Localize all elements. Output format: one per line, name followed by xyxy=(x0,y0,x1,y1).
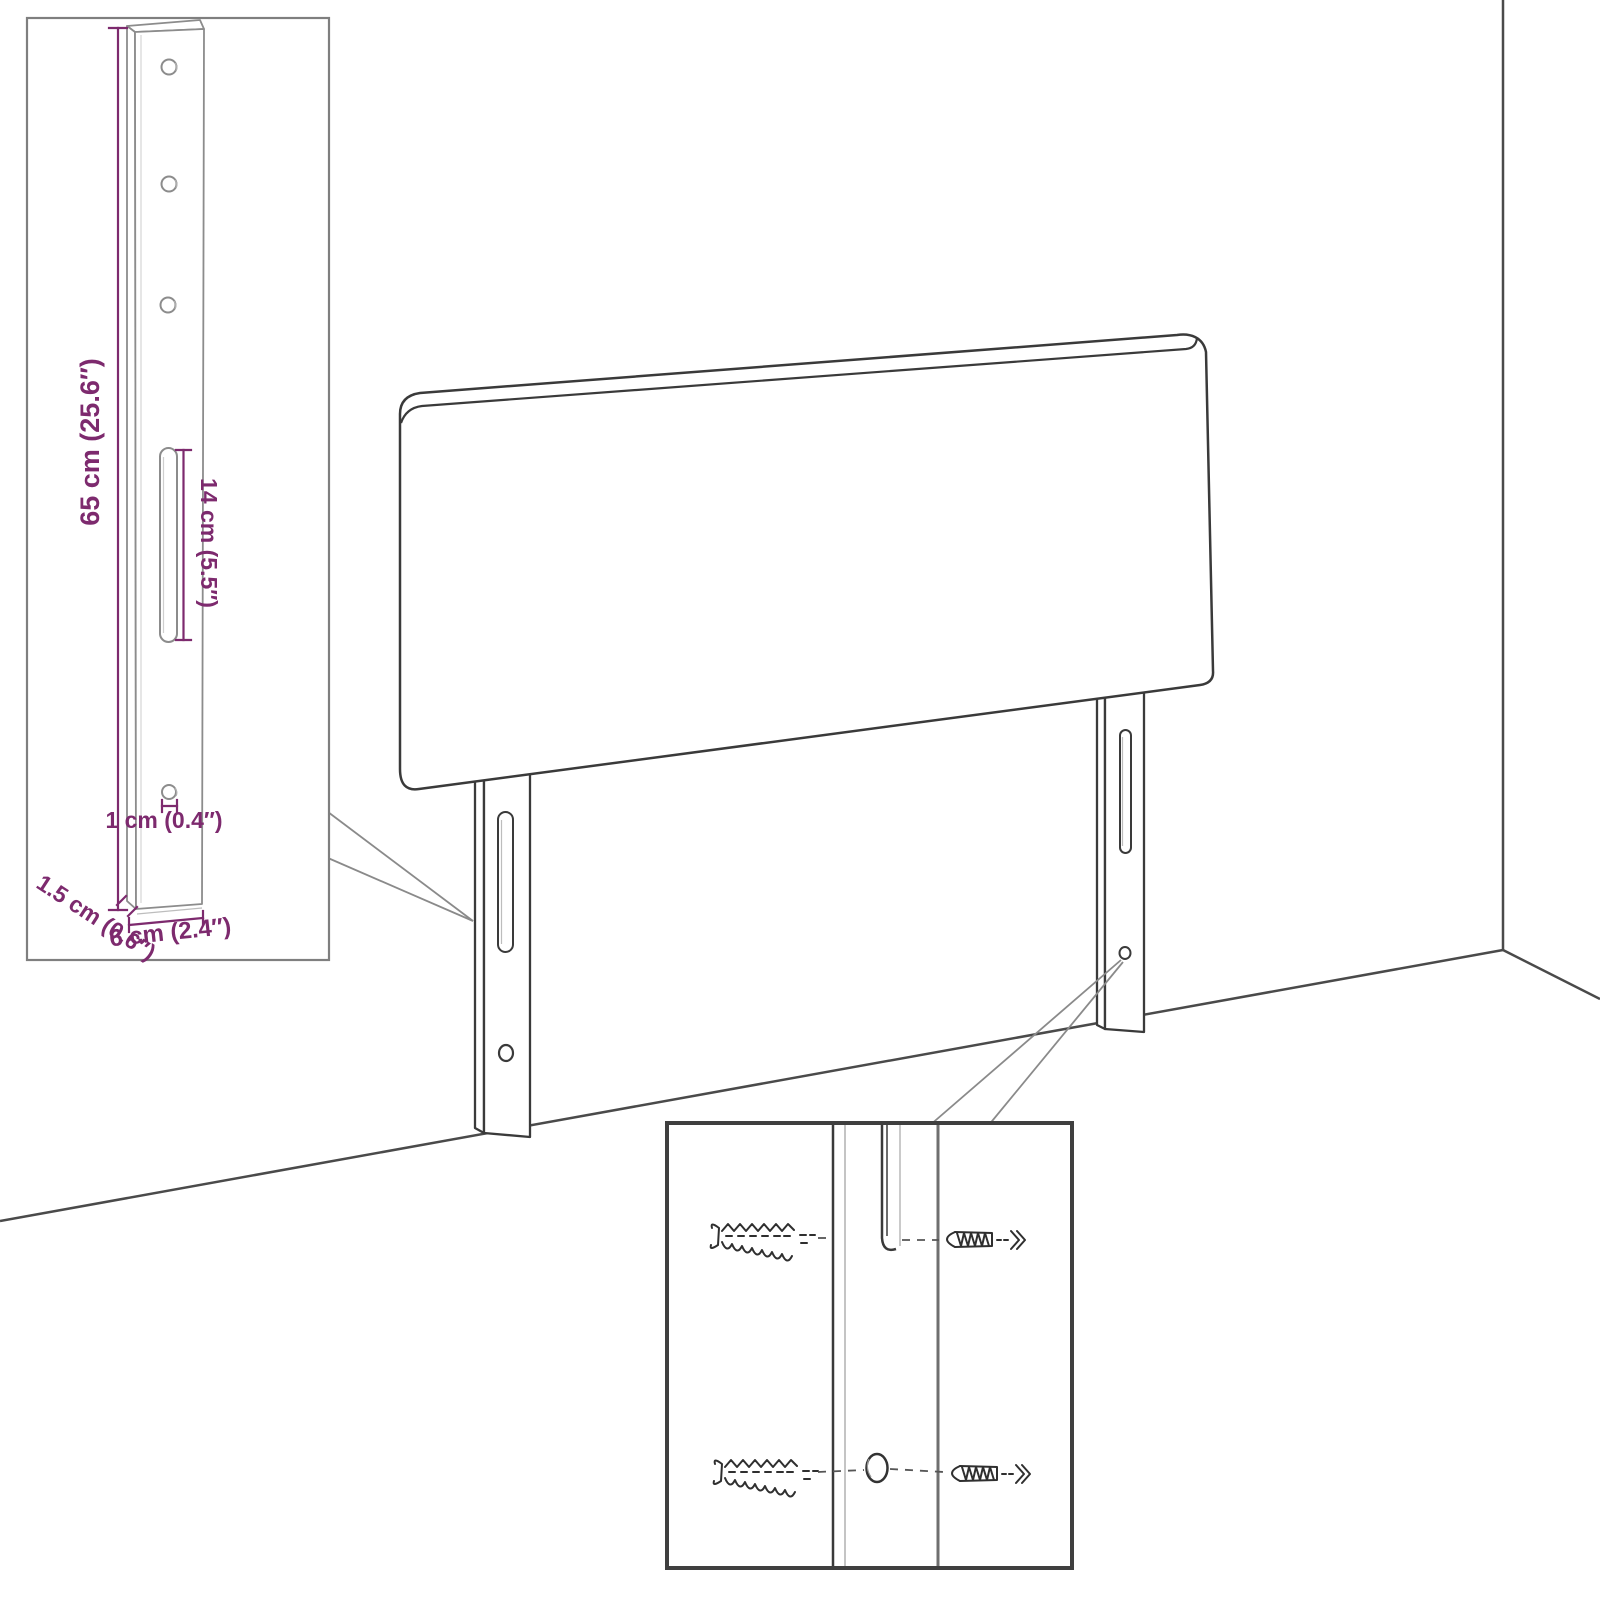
bottom-inset-panel xyxy=(667,1123,1072,1568)
dimension-label-hole: 1 cm (0.4″) xyxy=(105,807,222,833)
headboard-dimension-diagram: 65 cm (25.6″) 14 cm (5.5″) 1 cm (0.4″) 1… xyxy=(0,0,1600,1600)
diagram-canvas: 65 cm (25.6″) 14 cm (5.5″) 1 cm (0.4″) 1… xyxy=(0,0,1600,1600)
top-inset-panel: 65 cm (25.6″) 14 cm (5.5″) 1 cm (0.4″) 1… xyxy=(27,18,329,965)
left-leg-hole xyxy=(499,1045,513,1061)
headboard-panel xyxy=(400,335,1213,790)
bottom-inset-border xyxy=(667,1123,1072,1568)
headboard-panel-outline xyxy=(400,335,1213,790)
right-leg-hole xyxy=(1120,947,1131,959)
bracket-hole-2 xyxy=(162,177,177,192)
wall-floor-right-line xyxy=(1503,950,1600,999)
dimension-label-slot: 14 cm (5.5″) xyxy=(196,478,222,608)
dimension-label-height: 65 cm (25.6″) xyxy=(75,358,105,526)
bracket-hole-bottom xyxy=(162,785,176,799)
bracket-hole-3 xyxy=(161,298,176,313)
callout-lines-bottom-inset xyxy=(929,960,1123,1126)
callout-lines-top-inset xyxy=(328,812,473,921)
bracket-slot xyxy=(160,448,177,642)
left-leg-slot xyxy=(498,812,513,952)
right-leg-slot xyxy=(1120,730,1131,853)
bracket-detail-drawing xyxy=(127,20,204,914)
bracket-hole-1 xyxy=(162,60,177,75)
hole-closeup xyxy=(867,1454,888,1482)
